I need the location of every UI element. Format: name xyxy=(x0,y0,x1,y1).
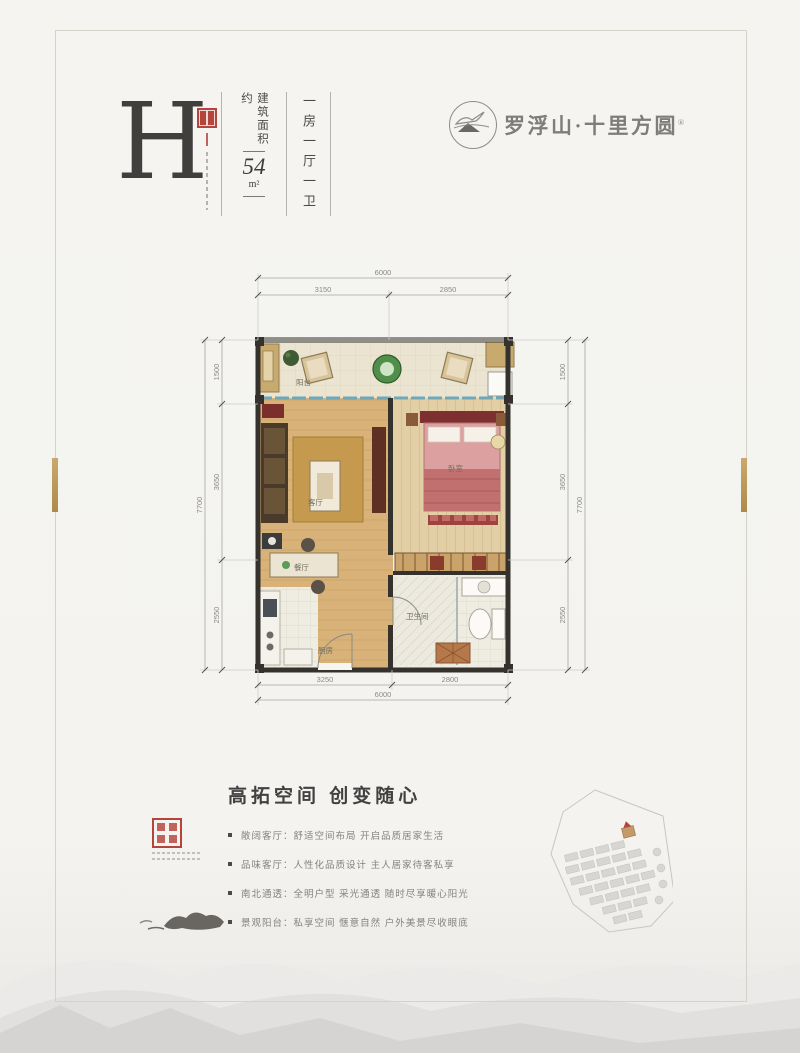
dim-top-seg1: 3150 xyxy=(315,285,332,294)
kitchen-sink xyxy=(263,599,277,617)
feature-text-1: 敞阔客厅：舒适空间布局 开启品质居家生活 xyxy=(241,828,444,842)
features-title: 高拓空间 创变随心 xyxy=(228,781,421,808)
dim-left-seg3: 2550 xyxy=(212,607,221,624)
nightstand-right xyxy=(496,413,506,426)
dim-right-seg2: 3650 xyxy=(558,474,567,491)
brand-logo-circle xyxy=(449,101,497,149)
feature-text-4: 景观阳台：私享空间 惬意自然 户外美景尽收眼底 xyxy=(241,915,469,929)
wardrobe xyxy=(395,553,508,573)
feature-seal-stamp-icon xyxy=(152,818,182,848)
dim-top-overall: 6000 xyxy=(375,268,392,277)
dim-left-seg1: 1500 xyxy=(212,364,221,381)
brochure-page: { "unit": { "letter": "H", "area_label":… xyxy=(0,0,800,1053)
label-living: 客厅 xyxy=(308,497,323,507)
wall-art xyxy=(262,404,284,418)
bullet-square-icon xyxy=(228,833,232,837)
lamp xyxy=(491,435,505,449)
stove-counter xyxy=(284,649,312,665)
label-dining: 餐厅 xyxy=(294,563,309,572)
feature-text-2: 品味客厅：人性化品质设计 主人居家待客私享 xyxy=(241,857,455,871)
bullet-square-icon xyxy=(228,891,232,895)
mountain-logo-icon xyxy=(450,102,493,145)
seal-caption xyxy=(206,152,208,210)
dim-bottom-seg1: 3250 xyxy=(317,675,334,684)
tv-cabinet xyxy=(372,427,386,513)
dim-bottom-overall: 6000 xyxy=(375,690,392,699)
area-block: 建筑面积约 54 m² xyxy=(222,92,286,216)
feature-seal-caption xyxy=(152,852,200,862)
brand-name: 罗浮山·十里方圆® xyxy=(504,110,687,140)
feature-item-4: 景观阳台：私享空间 惬意自然 户外美景尽收眼底 xyxy=(228,915,469,929)
feature-text-3: 南北通透：全明户型 采光通透 随时尽享暖心阳光 xyxy=(241,886,469,900)
entry-opening xyxy=(318,663,352,670)
site-plan-map xyxy=(533,782,673,937)
site-buildings xyxy=(562,835,664,932)
layout-type: 一房一厅一卫 xyxy=(299,94,318,216)
red-seal-stamp-icon xyxy=(197,108,217,128)
ink-mountain-sketch xyxy=(136,892,228,936)
area-rule-top xyxy=(243,151,265,152)
label-bathroom: 卫生间 xyxy=(406,611,429,621)
dim-left-seg2: 3650 xyxy=(212,474,221,491)
bullet-square-icon xyxy=(228,920,232,924)
feature-item-3: 南北通透：全明户型 采光通透 随时尽享暖心阳光 xyxy=(228,886,469,900)
floor-mat xyxy=(436,643,470,663)
dim-right-seg1: 1500 xyxy=(558,364,567,381)
dining-stool-2 xyxy=(311,580,325,594)
dim-left-overall: 7700 xyxy=(195,497,204,514)
floor-plan: 阳台 客厅 卧室 餐厅 厨房 卫生间 6000 3150 2850 3250 2… xyxy=(190,265,610,715)
dim-right-overall: 7700 xyxy=(575,497,584,514)
label-bedroom: 卧室 xyxy=(448,463,463,473)
feature-item-2: 品味客厅：人性化品质设计 主人居家待客私享 xyxy=(228,857,455,871)
area-value: 54 xyxy=(243,155,266,178)
dining-stool-1 xyxy=(301,538,315,552)
plant-icon xyxy=(283,350,299,366)
headboard xyxy=(420,411,504,423)
label-kitchen: 厨房 xyxy=(318,645,333,655)
toilet-tank xyxy=(492,609,505,639)
site-highlight xyxy=(620,820,636,838)
dim-bottom-seg2: 2800 xyxy=(442,675,459,684)
feature-item-1: 敞阔客厅：舒适空间布局 开启品质居家生活 xyxy=(228,828,444,842)
nightstand-left xyxy=(406,413,418,426)
gold-accent-right xyxy=(741,458,747,512)
label-balcony: 阳台 xyxy=(296,377,311,387)
registered-mark: ® xyxy=(678,118,686,127)
area-rule-bottom xyxy=(243,196,265,197)
dim-top-seg2: 2850 xyxy=(440,285,457,294)
brand-name-text: 罗浮山·十里方圆 xyxy=(504,114,678,138)
area-unit: m² xyxy=(249,179,260,190)
layout-column: 一房一厅一卫 xyxy=(287,94,330,216)
bullet-square-icon xyxy=(228,862,232,866)
seal-tick xyxy=(206,133,208,146)
toilet-icon xyxy=(469,609,491,639)
gold-accent-left xyxy=(52,458,58,512)
dim-right-seg3: 2550 xyxy=(558,607,567,624)
bench xyxy=(428,515,498,525)
unit-letter: H xyxy=(116,84,208,201)
header-divider-3 xyxy=(330,92,331,216)
area-label: 建筑面积约 xyxy=(238,92,270,146)
